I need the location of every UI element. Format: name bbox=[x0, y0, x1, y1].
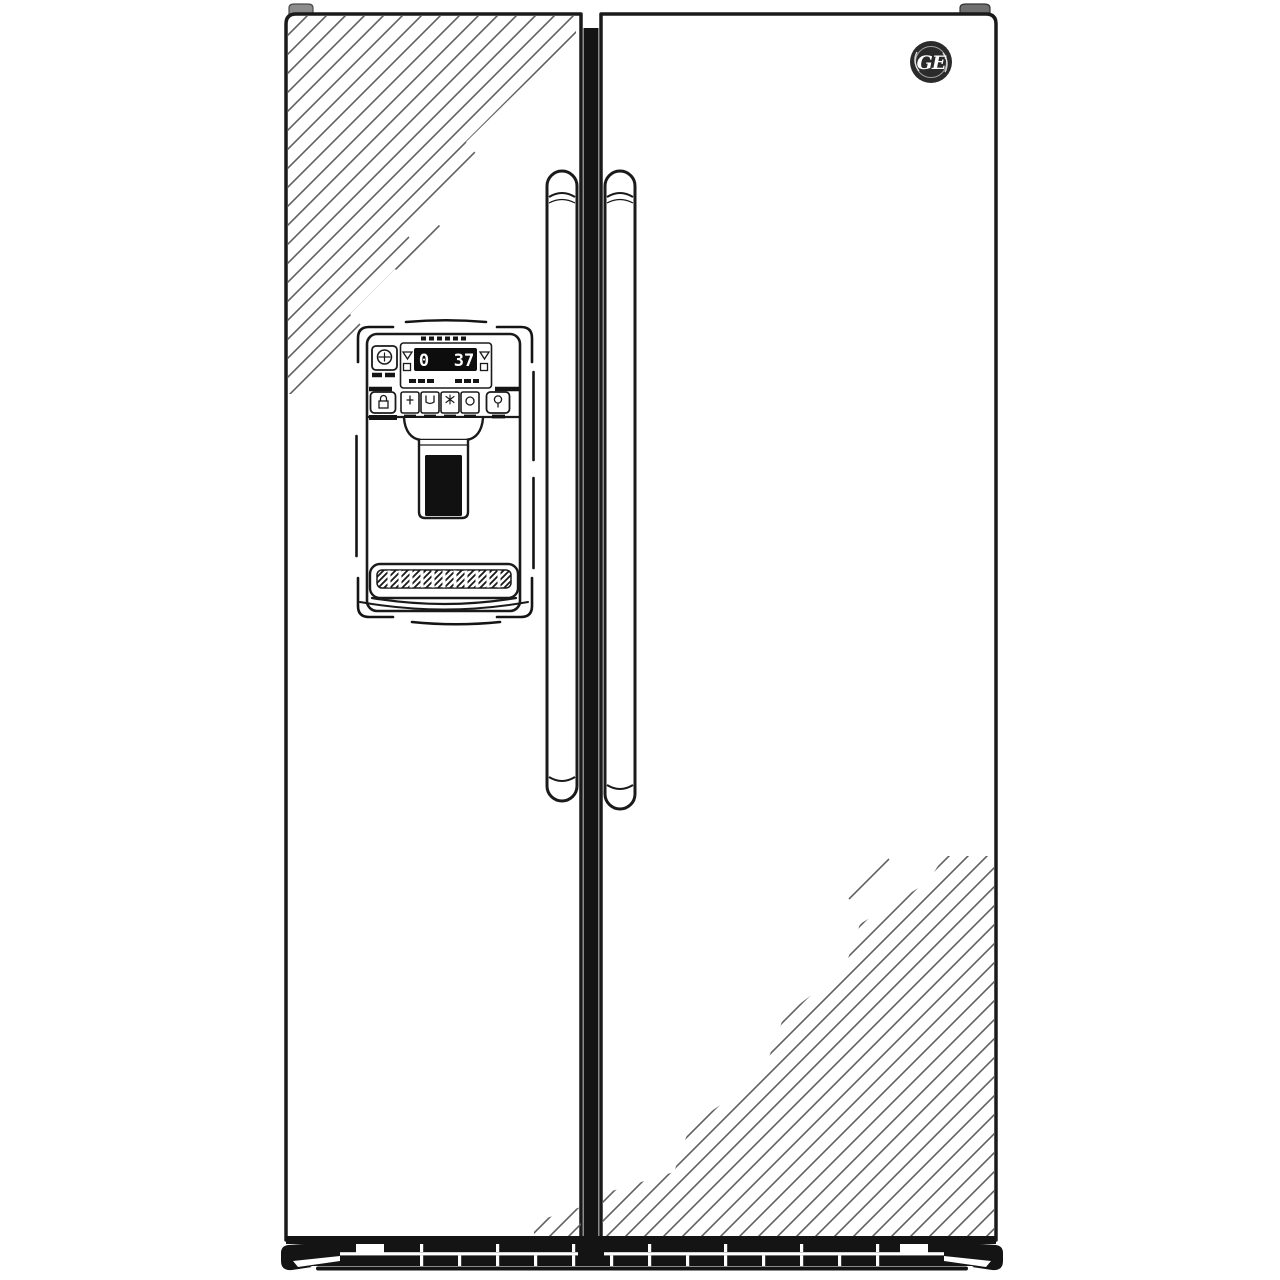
grille-notch-left bbox=[356, 1244, 384, 1254]
illustration-canvas: GE bbox=[0, 0, 1280, 1280]
dispenser-chute bbox=[404, 418, 483, 440]
grille-midline bbox=[340, 1252, 944, 1255]
grille-center-post bbox=[578, 1244, 604, 1266]
kickplate-grille bbox=[281, 1236, 1003, 1271]
ge-monogram-text: GE bbox=[917, 52, 947, 74]
dispenser-paddle bbox=[425, 455, 462, 516]
freezer-temp-value: 0 bbox=[419, 351, 429, 371]
refrigerator-illustration: GE bbox=[0, 0, 1280, 1280]
ge-logo: GE bbox=[910, 41, 952, 83]
fridge-temp-value: 37 bbox=[454, 351, 474, 371]
right-door-handle bbox=[605, 171, 635, 809]
door-bottom-edge bbox=[286, 1236, 996, 1244]
left-door-handle bbox=[547, 171, 577, 801]
dispenser-assembly: 0 37 bbox=[357, 320, 534, 624]
grille-bottom-lip bbox=[316, 1267, 968, 1271]
grille-notch-right bbox=[900, 1244, 928, 1254]
door-gap bbox=[584, 28, 599, 1240]
